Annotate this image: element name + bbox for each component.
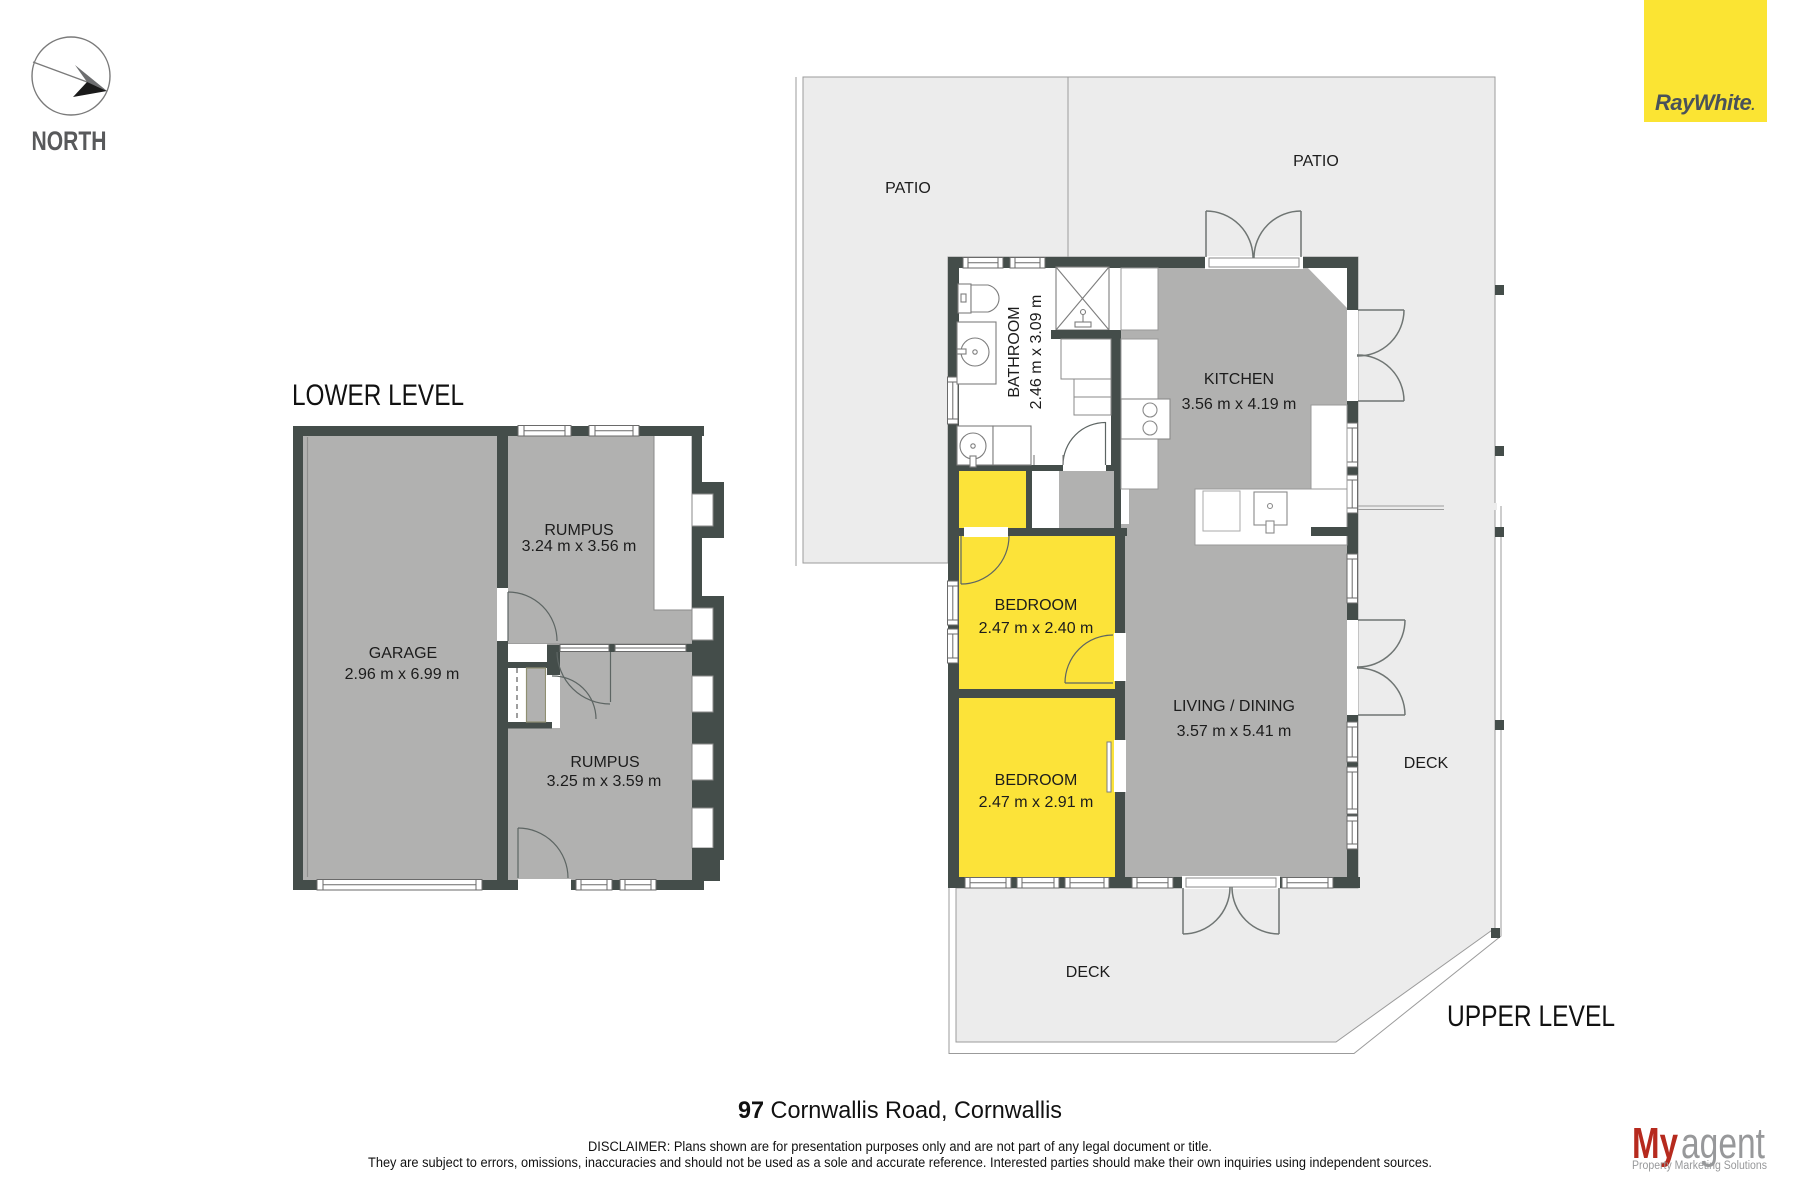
svg-text:LIVING / DINING: LIVING / DINING: [1173, 698, 1295, 715]
svg-text:UPPER LEVEL: UPPER LEVEL: [1447, 1000, 1615, 1033]
svg-text:3.24 m x 3.56 m: 3.24 m x 3.56 m: [522, 538, 637, 555]
svg-text:3.56 m x 4.19 m: 3.56 m x 4.19 m: [1182, 396, 1297, 413]
svg-text:2.47 m x 2.40 m: 2.47 m x 2.40 m: [979, 620, 1094, 637]
svg-text:2.47 m x 2.91 m: 2.47 m x 2.91 m: [979, 794, 1094, 811]
svg-text:2.96 m x 6.99 m: 2.96 m x 6.99 m: [345, 666, 460, 683]
svg-text:2.46 m x 3.09 m: 2.46 m x 3.09 m: [1028, 295, 1045, 410]
svg-text:97 Cornwallis Road, Cornwallis: 97 Cornwallis Road, Cornwallis: [738, 1097, 1062, 1124]
svg-text:PATIO: PATIO: [1293, 153, 1339, 170]
svg-text:RUMPUS: RUMPUS: [570, 754, 639, 771]
svg-text:Property Marketing Solutions: Property Marketing Solutions: [1632, 1160, 1767, 1172]
svg-text:NORTH: NORTH: [32, 126, 107, 156]
svg-text:3.57 m x 5.41 m: 3.57 m x 5.41 m: [1177, 723, 1292, 740]
svg-text:BEDROOM: BEDROOM: [995, 597, 1078, 614]
svg-text:DECK: DECK: [1066, 964, 1111, 981]
svg-text:DISCLAIMER: Plans shown are fo: DISCLAIMER: Plans shown are for presenta…: [588, 1139, 1212, 1154]
svg-text:3.25 m x 3.59 m: 3.25 m x 3.59 m: [547, 773, 662, 790]
svg-text:RayWhite.: RayWhite.: [1655, 90, 1755, 115]
svg-text:KITCHEN: KITCHEN: [1204, 371, 1274, 388]
svg-text:RUMPUS: RUMPUS: [544, 522, 613, 539]
svg-text:DECK: DECK: [1404, 755, 1449, 772]
svg-text:BEDROOM: BEDROOM: [995, 772, 1078, 789]
svg-text:LOWER LEVEL: LOWER LEVEL: [292, 379, 464, 412]
svg-text:BATHROOM: BATHROOM: [1006, 306, 1023, 397]
svg-text:GARAGE: GARAGE: [369, 645, 437, 662]
svg-text:They are subject to errors, om: They are subject to errors, omissions, i…: [368, 1155, 1432, 1170]
svg-text:PATIO: PATIO: [885, 180, 931, 197]
